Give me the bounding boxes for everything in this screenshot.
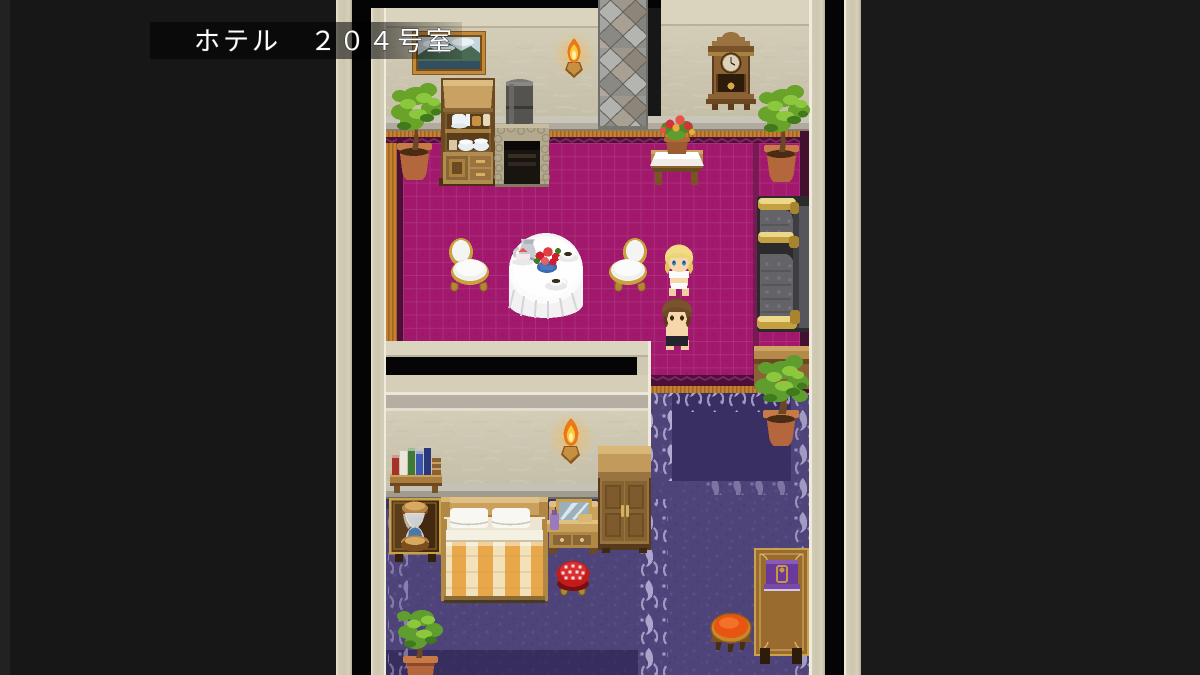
svg-text:ホテル ２０４号室: ホテル ２０４号室 xyxy=(194,26,455,56)
